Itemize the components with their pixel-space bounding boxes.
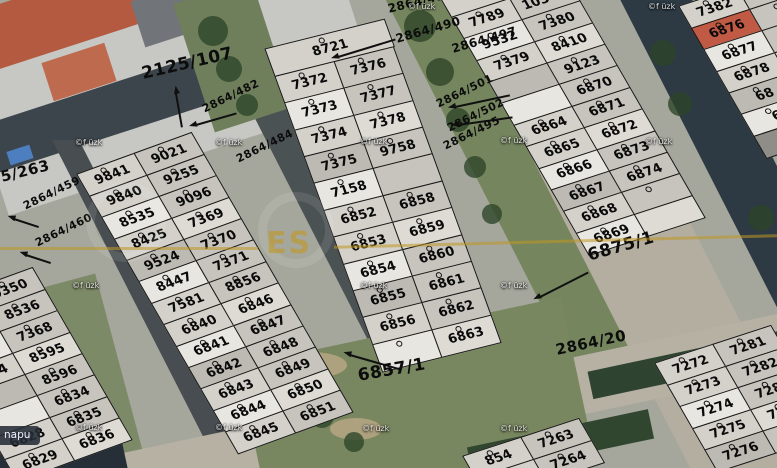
attribution-watermark: ©f üzk bbox=[215, 423, 242, 432]
attribution-watermark: ©f üzk bbox=[75, 138, 102, 147]
parcel-number: 6856 bbox=[378, 312, 418, 335]
parcel-number: 7372 bbox=[290, 71, 330, 94]
attribution-watermark: ©f üzk bbox=[72, 281, 99, 290]
attribution-watermark: ©f üzk bbox=[215, 138, 242, 147]
road-parcel-label: 2864/460 bbox=[33, 211, 94, 250]
parcel-number: 6859 bbox=[407, 217, 447, 240]
attribution-watermark: ©f üzk bbox=[500, 281, 527, 290]
parcel-number: 7264 bbox=[548, 449, 590, 468]
survey-point-icon bbox=[772, 3, 777, 10]
survey-point-icon bbox=[396, 340, 404, 347]
attribution-watermark: ©f üzk bbox=[500, 136, 527, 145]
parcel-number: 7373 bbox=[300, 98, 340, 121]
attribution-watermark: ©f üzk bbox=[408, 2, 435, 11]
parcel-number: 6862 bbox=[436, 298, 476, 321]
parcel-number: 7378 bbox=[368, 110, 408, 133]
attribution-watermark: ©f üzk bbox=[648, 2, 675, 11]
parcel-number: 7375 bbox=[319, 151, 359, 174]
parcel-number: 7376 bbox=[348, 56, 388, 79]
watermark-brand: ES bbox=[266, 226, 312, 261]
parcel-number: 6853 bbox=[348, 232, 388, 255]
watermark-shape bbox=[86, 182, 166, 262]
attribution-watermark: ©f üzk bbox=[360, 137, 387, 146]
attribution-watermark: ©f üzk bbox=[362, 424, 389, 433]
attribution-watermark: ©f üzk bbox=[360, 281, 387, 290]
parcel-number: 6860 bbox=[417, 244, 457, 267]
attribution-watermark: ©f üzk bbox=[500, 424, 527, 433]
parcel-number: 6861 bbox=[427, 271, 467, 294]
label-arrow bbox=[14, 218, 39, 228]
parcel-number: 6863 bbox=[446, 325, 486, 348]
watermark-line bbox=[0, 247, 258, 250]
parcel-number: 7284 bbox=[765, 399, 777, 423]
parcel-number: 6852 bbox=[339, 205, 379, 228]
parcel-number: 7276 bbox=[720, 439, 762, 463]
parcel-number: 6854 bbox=[358, 259, 398, 282]
label-arrow bbox=[26, 254, 51, 264]
attribution-watermark: ©f üzk bbox=[75, 423, 102, 432]
parcel-number: 6858 bbox=[397, 191, 437, 214]
map-tooltip[interactable]: napu bbox=[0, 426, 40, 445]
parcel-number: 6829 bbox=[19, 447, 61, 468]
parcel-number: 7158 bbox=[329, 178, 369, 201]
parcel-number: 7374 bbox=[309, 125, 349, 148]
cadastral-map-view: ES 9350853673689414859585966834682868356… bbox=[0, 0, 777, 468]
parcel-number: 7377 bbox=[358, 83, 398, 106]
survey-point-icon bbox=[644, 186, 653, 193]
attribution-watermark: ©f üzk bbox=[645, 137, 672, 146]
